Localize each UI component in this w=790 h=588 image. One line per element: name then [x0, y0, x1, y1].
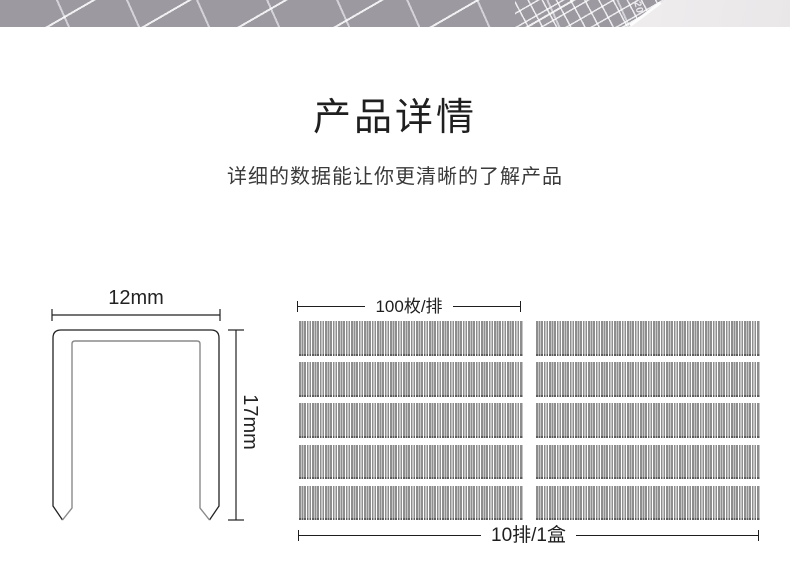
staple-strip	[299, 486, 523, 521]
page-title: 产品详情	[0, 86, 790, 141]
dimension-line	[298, 306, 365, 307]
width-dimension-line	[52, 309, 220, 321]
staple-inner-outline	[63, 341, 210, 520]
per-box-dimension: 10排/1盒	[298, 522, 759, 548]
dimension-line	[299, 535, 481, 536]
dimension-tick	[758, 530, 759, 541]
staple-strips-grid	[299, 321, 760, 521]
per-strip-count-label: 100枚/排	[365, 298, 452, 315]
staple-height-label: 17mm	[239, 394, 261, 450]
product-detail-page: 20 产品详情 详细的数据能让你更清晰的了解产品 12mm 17mm 100枚/…	[0, 0, 790, 588]
staple-strip	[536, 403, 760, 438]
staple-strip	[536, 362, 760, 397]
dimension-tick	[520, 301, 521, 312]
staple-strip	[299, 321, 523, 356]
staple-strip	[536, 486, 760, 521]
page-subtitle: 详细的数据能让你更清晰的了解产品	[0, 160, 790, 189]
staple-outer-outline	[53, 330, 219, 520]
per-box-count-label: 10排/1盒	[481, 526, 576, 545]
staple-strip	[299, 403, 523, 438]
staple-strip	[536, 445, 760, 480]
cutting-mat-image	[0, 0, 790, 27]
staple-strip	[299, 445, 523, 480]
staple-strip	[299, 362, 523, 397]
staple-width-label: 12mm	[108, 287, 164, 309]
banner-photo-strip: 20	[0, 0, 790, 27]
staple-dimension-diagram: 12mm 17mm	[30, 282, 270, 548]
dimension-line	[576, 535, 758, 536]
staple-strip	[536, 321, 760, 356]
per-strip-dimension: 100枚/排	[297, 294, 521, 318]
dimension-line	[453, 306, 520, 307]
